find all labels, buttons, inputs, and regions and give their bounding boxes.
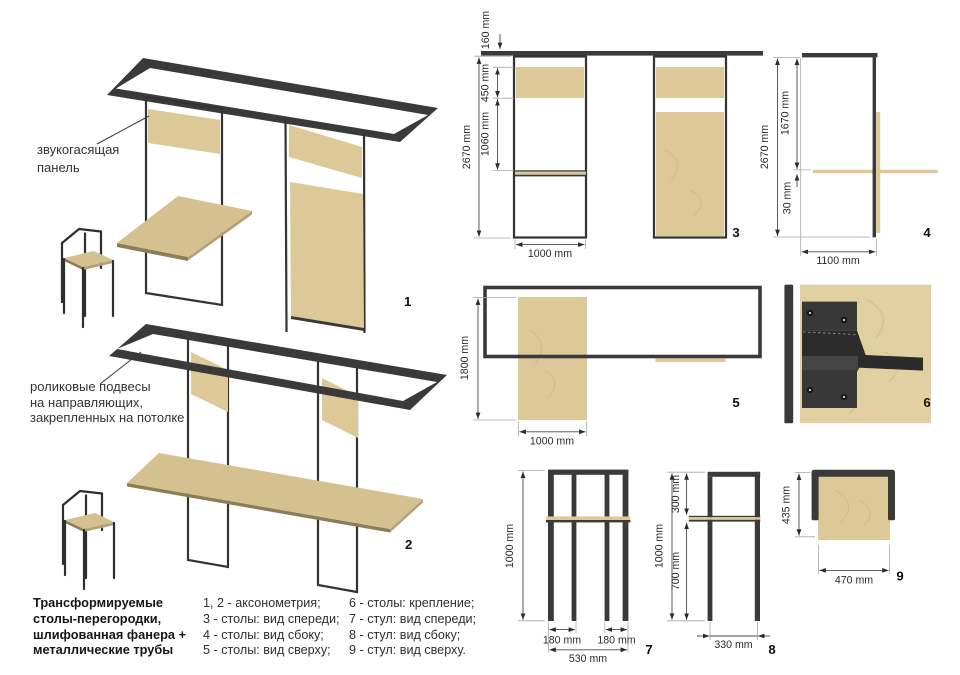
dim-text: 450 mm: [480, 64, 492, 102]
dim-text: 700 mm: [670, 552, 682, 590]
axonometric-view-1: 1: [62, 58, 438, 333]
dim-text: 470 mm: [835, 575, 873, 587]
chair-axonometric: [62, 229, 113, 327]
title-line: столы-перегородки,: [33, 611, 186, 627]
technical-drawing: 1 2: [0, 0, 960, 675]
dim-text: 160 mm: [480, 11, 492, 49]
bracket-bend-lower: [802, 356, 866, 372]
view-number: 4: [923, 225, 931, 240]
annotation-line: закрепленных на потолке: [30, 410, 184, 426]
plywood-panel-large: [656, 112, 724, 236]
chair-post: [548, 470, 554, 621]
acoustic-panel-left: [148, 109, 220, 154]
chair-axonometric: [63, 491, 114, 589]
vertical-tube: [873, 57, 876, 237]
title-line: металлические трубы: [33, 642, 186, 658]
acoustic-panel: [656, 67, 724, 98]
chair-post: [623, 470, 629, 621]
chair-top-bar: [548, 470, 628, 475]
dim-text: 300 mm: [670, 475, 682, 513]
annotation-line: панель: [37, 159, 119, 177]
dim-text: 180 mm: [597, 635, 635, 647]
dim-text: 1000 mm: [530, 436, 574, 448]
title-line: шлифованная фанера +: [33, 627, 186, 643]
chair-frame-top: [812, 470, 895, 477]
dim-text: 1100 mm: [816, 255, 860, 267]
tables-top-view: 1800 mm 1000 mm 5: [459, 288, 760, 448]
legend-column-1: 1, 2 - аксонометрия; 3 - столы: вид спер…: [203, 596, 340, 659]
dim-text: 2670 mm: [759, 125, 771, 169]
drawing-sheet: 1 2: [0, 0, 960, 675]
chair-seat-panel: [818, 474, 890, 540]
chair-post-front: [708, 477, 713, 621]
legend-item: 3 - столы: вид спереди;: [203, 612, 340, 628]
legend-item: 7 - стул: вид спереди;: [349, 612, 476, 628]
dim-text: 1000 mm: [654, 524, 666, 568]
vertical-tube: [784, 285, 793, 424]
title-line: Трансформируемые: [33, 595, 186, 611]
legend-item: 9 - стул: вид сверху.: [349, 643, 476, 659]
dim-text: 180 mm: [543, 635, 581, 647]
tables-side-view: 2670 mm 1670 mm 30 mm 1100 mm 4: [759, 53, 938, 267]
view-number: 5: [732, 395, 739, 410]
annotation-line: роликовые подвесы: [30, 379, 184, 395]
tables-front-view: 160 mm 2670 mm 450 mm 1060 mm 1000 mm 3: [461, 11, 763, 260]
dim-text: 30 mm: [782, 182, 794, 215]
hanging-tube: [286, 120, 287, 332]
chair-frame-side: [812, 471, 819, 520]
dim-text: 435 mm: [781, 486, 793, 524]
acoustic-panel-right: [322, 378, 358, 438]
title-block: Трансформируемые столы-перегородки, шлиф…: [33, 595, 186, 658]
chair-seat: [546, 516, 630, 520]
ceiling-rail: [802, 53, 878, 57]
chair-seat-rail: [689, 516, 760, 517]
dim-text: 1800 mm: [459, 336, 471, 380]
legend-item: 4 - столы: вид сбоку;: [203, 628, 340, 644]
chair-seat-rail: [546, 520, 630, 522]
legend-item: 1, 2 - аксонометрия;: [203, 596, 340, 612]
view-number: 9: [896, 569, 903, 584]
leader-line-panel: [97, 116, 149, 144]
dim-text: 2670 mm: [461, 125, 473, 169]
chair-back-bar: [63, 491, 102, 505]
table-edge-on: [656, 359, 726, 362]
chair-back-bar: [62, 229, 101, 243]
legend-item: 8 - стул: вид сбоку;: [349, 628, 476, 644]
fastening-detail-view: 6: [784, 285, 931, 424]
legend-item: 5 - столы: вид сверху;: [203, 643, 340, 659]
dim-text: 1000 mm: [504, 524, 516, 568]
dim-text: 530 mm: [569, 653, 607, 665]
ceiling-rail: [481, 51, 763, 56]
view-number: 7: [645, 642, 652, 657]
dim-text: 1060 mm: [480, 112, 492, 156]
chair-post: [572, 470, 577, 621]
table-rail: [515, 170, 586, 171]
dim-text: 1670 mm: [780, 91, 792, 135]
table-rail: [515, 175, 586, 177]
annotation-line: звукогасящая: [37, 141, 119, 159]
tube-crossing: [873, 169, 876, 174]
plywood-panel: [518, 297, 587, 420]
view-number: 8: [768, 642, 775, 657]
chair-seat-rail: [689, 520, 760, 522]
acoustic-panel: [516, 67, 584, 98]
annotation-line: на направляющих,: [30, 395, 184, 411]
legend-column-2: 6 - столы: крепление; 7 - стул: вид спер…: [349, 596, 476, 659]
dim-text: 330 mm: [714, 639, 752, 651]
view-number: 2: [405, 537, 412, 552]
chair-top-bar: [708, 472, 761, 477]
plywood-panel-large: [290, 182, 364, 328]
chair-post-back: [755, 472, 760, 621]
annotation-roller-hangers: роликовые подвесы на направляющих, закре…: [30, 379, 184, 426]
view-number: 3: [732, 225, 739, 240]
view-number: 6: [923, 395, 930, 410]
view-number: 1: [404, 294, 411, 309]
hanging-tube: [364, 133, 365, 333]
chair-seat: [689, 517, 760, 520]
bracket-bend-upper: [802, 331, 866, 356]
chair-post: [605, 470, 610, 621]
chair-front-view: 1000 mm 180 mm 180 mm 530 mm 7: [504, 470, 653, 665]
annotation-acoustic-panel: звукогасящая панель: [37, 141, 119, 176]
table-surface-edge: [515, 172, 586, 175]
axonometric-view-2: 2: [63, 324, 447, 592]
chair-frame-side: [888, 471, 895, 520]
legend-item: 6 - столы: крепление;: [349, 596, 476, 612]
dim-text: 1000 mm: [528, 248, 572, 260]
chair-side-view: 1000 mm 300 mm 700 mm 330 mm 8 435 mm: [654, 472, 816, 657]
acoustic-panel-left: [191, 352, 228, 412]
chair-top-view: 470 mm 9: [812, 470, 904, 587]
